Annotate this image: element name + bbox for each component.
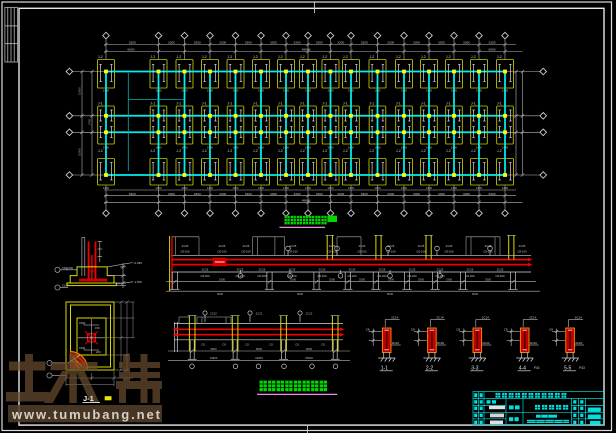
svg-text:1400: 1400 — [283, 146, 290, 150]
svg-text:2C25: 2C25 — [379, 267, 386, 271]
svg-text:3300: 3300 — [489, 41, 496, 45]
svg-text:6600: 6600 — [472, 292, 479, 296]
svg-text:6600: 6600 — [297, 292, 304, 296]
svg-text:3300: 3300 — [129, 41, 136, 45]
svg-text:C8: C8 — [549, 327, 553, 331]
svg-text:C8-200: C8-200 — [377, 274, 387, 278]
svg-text:1400: 1400 — [348, 146, 355, 150]
svg-text:2C14: 2C14 — [391, 316, 399, 320]
svg-text:3300: 3300 — [245, 41, 252, 45]
svg-text:J-1: J-1 — [369, 101, 374, 105]
svg-text:1400: 1400 — [374, 146, 381, 150]
svg-text:2C22: 2C22 — [306, 312, 313, 316]
svg-text:J-1: J-1 — [322, 101, 327, 105]
svg-text:C8: C8 — [456, 327, 460, 331]
svg-text:1400: 1400 — [327, 146, 334, 150]
svg-text:C8-100: C8-100 — [416, 249, 426, 253]
svg-text:J-2: J-2 — [421, 149, 426, 153]
svg-text:1400: 1400 — [207, 89, 214, 93]
svg-text:6600: 6600 — [217, 292, 224, 296]
svg-text:19800: 19800 — [305, 356, 313, 360]
svg-text:150: 150 — [95, 326, 100, 330]
svg-text:J-1: J-1 — [227, 101, 232, 105]
svg-text:1400: 1400 — [258, 186, 265, 190]
svg-text:1400: 1400 — [283, 186, 290, 190]
svg-text:2C25: 2C25 — [349, 267, 356, 271]
svg-text:J-1: J-1 — [300, 101, 305, 105]
svg-text:2C25: 2C25 — [237, 267, 244, 271]
svg-text:3C20: 3C20 — [530, 341, 538, 345]
svg-text:J-2: J-2 — [369, 149, 374, 153]
svg-text:J-2: J-2 — [497, 55, 502, 59]
svg-text:2C25: 2C25 — [485, 244, 492, 248]
svg-text:1400: 1400 — [327, 186, 334, 190]
svg-text:C8: C8 — [269, 342, 273, 346]
svg-text:2C25: 2C25 — [409, 267, 416, 271]
svg-text:C8-200: C8-200 — [435, 274, 445, 278]
svg-text:2C25: 2C25 — [202, 267, 209, 271]
svg-text:J-1: J-1 — [471, 101, 476, 105]
svg-text:J-1: J-1 — [278, 101, 283, 105]
svg-text:3300: 3300 — [361, 41, 368, 45]
svg-text:J-1: J-1 — [202, 101, 207, 105]
svg-text:1400: 1400 — [181, 146, 188, 150]
svg-text:3C20: 3C20 — [575, 341, 583, 345]
svg-text:J-2: J-2 — [300, 55, 305, 59]
svg-text:3300: 3300 — [219, 41, 226, 45]
svg-text:1400: 1400 — [401, 89, 408, 93]
svg-text:1400: 1400 — [426, 146, 433, 150]
svg-text:C8-100: C8-100 — [517, 249, 527, 253]
svg-text:C8-200: C8-200 — [257, 274, 267, 278]
svg-text:C8@: C8@ — [79, 321, 86, 325]
svg-text:1400: 1400 — [207, 146, 214, 150]
svg-text:3300: 3300 — [219, 192, 226, 196]
svg-text:3300: 3300 — [418, 278, 425, 282]
svg-text:J-1: J-1 — [150, 101, 155, 105]
svg-text:2C25: 2C25 — [319, 267, 326, 271]
svg-text:2C25: 2C25 — [182, 244, 189, 248]
svg-text:15000: 15000 — [78, 87, 82, 95]
svg-text:1400: 1400 — [232, 186, 239, 190]
svg-text:3300: 3300 — [446, 278, 453, 282]
svg-text:3300: 3300 — [361, 192, 368, 196]
svg-text:1400: 1400 — [426, 89, 433, 93]
svg-text:1400: 1400 — [451, 186, 458, 190]
svg-text:3300: 3300 — [413, 192, 420, 196]
svg-text:J-2: J-2 — [421, 55, 426, 59]
svg-text:2C14: 2C14 — [482, 316, 490, 320]
svg-text:3300: 3300 — [194, 41, 201, 45]
svg-text:J-2: J-2 — [176, 55, 181, 59]
svg-text:2C25: 2C25 — [219, 244, 226, 248]
svg-text:2700: 2700 — [88, 118, 92, 125]
svg-text:1400: 1400 — [103, 186, 110, 190]
svg-text:2C25: 2C25 — [446, 244, 453, 248]
svg-text:J-1: J-1 — [497, 101, 502, 105]
svg-text:3C20: 3C20 — [482, 341, 490, 345]
svg-text:-1.500: -1.500 — [134, 280, 143, 284]
svg-text:3300: 3300 — [463, 192, 470, 196]
svg-text:3300: 3300 — [438, 41, 445, 45]
svg-text:2C22: 2C22 — [210, 312, 217, 316]
svg-text:1400: 1400 — [476, 146, 483, 150]
svg-text:C8-100: C8-100 — [288, 249, 298, 253]
svg-text:1400: 1400 — [283, 89, 290, 93]
svg-text:J-2: J-2 — [253, 55, 258, 59]
svg-text:3300: 3300 — [438, 192, 445, 196]
svg-text:J-1: J-1 — [421, 101, 426, 105]
svg-text:J-2: J-2 — [343, 149, 348, 153]
svg-text:1400: 1400 — [305, 89, 312, 93]
svg-text:1400: 1400 — [426, 186, 433, 190]
svg-text:2C25: 2C25 — [467, 267, 474, 271]
svg-text:C8: C8 — [366, 327, 370, 331]
svg-text:1400: 1400 — [502, 186, 509, 190]
svg-text:C8-100: C8-100 — [444, 249, 454, 253]
svg-text:C8-200: C8-200 — [317, 274, 327, 278]
svg-text:1400: 1400 — [348, 186, 355, 190]
svg-text:J-2: J-2 — [446, 149, 451, 153]
svg-text:1400: 1400 — [103, 146, 110, 150]
svg-text:C8: C8 — [222, 342, 226, 346]
svg-text:1400: 1400 — [232, 89, 239, 93]
svg-text:2C25: 2C25 — [519, 244, 526, 248]
svg-text:200: 200 — [96, 350, 101, 354]
svg-text:6600: 6600 — [387, 292, 394, 296]
svg-text:1400: 1400 — [451, 146, 458, 150]
svg-text:1400: 1400 — [502, 146, 509, 150]
svg-text:J-2: J-2 — [497, 149, 502, 153]
svg-text:6600: 6600 — [256, 347, 263, 351]
svg-text:2C25: 2C25 — [259, 267, 266, 271]
svg-text:J-2: J-2 — [369, 55, 374, 59]
svg-text:3300: 3300 — [359, 278, 366, 282]
svg-text:J-2: J-2 — [322, 149, 327, 153]
svg-text:J-1: J-1 — [446, 101, 451, 105]
svg-text:1400: 1400 — [348, 89, 355, 93]
svg-text:1400: 1400 — [476, 186, 483, 190]
svg-text:3300: 3300 — [463, 41, 470, 45]
svg-text:C8-200: C8-200 — [495, 274, 505, 278]
svg-text:3300: 3300 — [489, 192, 496, 196]
svg-text:6600: 6600 — [210, 347, 217, 351]
svg-text:1400: 1400 — [305, 186, 312, 190]
svg-text:P43: P43 — [534, 366, 540, 370]
svg-text:J-2: J-2 — [278, 149, 283, 153]
svg-text:C8: C8 — [201, 342, 205, 346]
svg-text:3300: 3300 — [245, 192, 252, 196]
svg-text:3C20: 3C20 — [437, 341, 445, 345]
svg-text:3300: 3300 — [290, 278, 297, 282]
svg-text:3300: 3300 — [337, 41, 344, 45]
svg-text:J-2: J-2 — [343, 55, 348, 59]
svg-text:2C25: 2C25 — [418, 244, 425, 248]
svg-text:J-2: J-2 — [98, 149, 103, 153]
svg-text:J-1: J-1 — [396, 101, 401, 105]
svg-text:J-2: J-2 — [98, 55, 103, 59]
svg-text:1400: 1400 — [155, 89, 162, 93]
svg-text:1400: 1400 — [305, 146, 312, 150]
svg-text:2C25: 2C25 — [388, 244, 395, 248]
svg-text:J-2: J-2 — [253, 149, 258, 153]
svg-text:1400: 1400 — [103, 89, 110, 93]
svg-text:J-2: J-2 — [227, 55, 232, 59]
svg-text:1400: 1400 — [155, 186, 162, 190]
svg-text:J-2: J-2 — [150, 55, 155, 59]
svg-text:1400: 1400 — [502, 89, 509, 93]
svg-text:1400: 1400 — [258, 146, 265, 150]
svg-text:1400: 1400 — [258, 89, 265, 93]
svg-text:2C25: 2C25 — [290, 244, 297, 248]
svg-text:C8-200: C8-200 — [235, 274, 245, 278]
svg-text:3C20: 3C20 — [392, 341, 400, 345]
svg-text:19800: 19800 — [210, 356, 218, 360]
svg-text:C8-200: C8-200 — [347, 274, 357, 278]
svg-text:J-2: J-2 — [300, 149, 305, 153]
svg-text:1400: 1400 — [401, 186, 408, 190]
svg-text:C8-100: C8-100 — [327, 249, 337, 253]
svg-text:3300: 3300 — [337, 192, 344, 196]
svg-text:1400: 1400 — [476, 89, 483, 93]
svg-text:J-2: J-2 — [202, 149, 207, 153]
svg-text:3300: 3300 — [129, 192, 136, 196]
svg-text:1400: 1400 — [232, 146, 239, 150]
svg-text:J-2: J-2 — [150, 149, 155, 153]
svg-text:C8-200: C8-200 — [287, 274, 297, 278]
svg-text:C8-200: C8-200 — [200, 274, 210, 278]
svg-text:C8-100: C8-100 — [483, 249, 493, 253]
svg-text:3300: 3300 — [316, 41, 323, 45]
svg-text:J-2: J-2 — [176, 149, 181, 153]
svg-text:2C14: 2C14 — [529, 316, 537, 320]
svg-text:15000: 15000 — [78, 148, 82, 156]
svg-text:J-1: J-1 — [98, 101, 103, 105]
svg-text:C8: C8 — [504, 327, 508, 331]
svg-text:1400: 1400 — [374, 89, 381, 93]
svg-text:3300: 3300 — [388, 278, 395, 282]
svg-text:1400: 1400 — [401, 146, 408, 150]
svg-text:J-1: J-1 — [176, 101, 181, 105]
svg-text:3300: 3300 — [485, 278, 492, 282]
svg-text:49800: 49800 — [302, 199, 311, 203]
svg-text:3300: 3300 — [294, 192, 301, 196]
svg-text:J-1: J-1 — [343, 101, 348, 105]
svg-text:6600: 6600 — [306, 347, 313, 351]
svg-text:C8-100: C8-100 — [357, 249, 367, 253]
svg-text:2C25: 2C25 — [497, 267, 504, 271]
svg-text:C8-100: C8-100 — [386, 249, 396, 253]
svg-text:6600: 6600 — [489, 48, 496, 52]
svg-text:2C25: 2C25 — [243, 244, 250, 248]
svg-text:3300: 3300 — [413, 41, 420, 45]
svg-text:J-2: J-2 — [227, 149, 232, 153]
svg-text:2C25: 2C25 — [359, 244, 366, 248]
svg-text:3300: 3300 — [168, 192, 175, 196]
svg-text:J-2: J-2 — [202, 55, 207, 59]
svg-text:J-2: J-2 — [471, 149, 476, 153]
svg-text:2C25: 2C25 — [329, 244, 336, 248]
svg-text:J-2: J-2 — [471, 55, 476, 59]
svg-text:2C25: 2C25 — [289, 267, 296, 271]
svg-text:C8-100: C8-100 — [217, 249, 227, 253]
svg-text:1400: 1400 — [451, 89, 458, 93]
svg-text:C8: C8 — [245, 342, 249, 346]
svg-text:J-1: J-1 — [253, 101, 258, 105]
svg-text:49800: 49800 — [302, 48, 311, 52]
svg-text:C8-100: C8-100 — [180, 249, 190, 253]
svg-text:2C14: 2C14 — [436, 316, 444, 320]
svg-text:J-1: J-1 — [83, 394, 94, 403]
svg-text:3300: 3300 — [387, 192, 394, 196]
svg-text:J-2: J-2 — [446, 55, 451, 59]
svg-text:J-2: J-2 — [396, 149, 401, 153]
svg-text:C8: C8 — [295, 342, 299, 346]
svg-text:2C22: 2C22 — [256, 312, 263, 316]
svg-text:19800: 19800 — [255, 356, 263, 360]
svg-text:6600: 6600 — [128, 48, 135, 52]
svg-text:-0.050: -0.050 — [134, 261, 143, 265]
svg-text:1400: 1400 — [181, 89, 188, 93]
svg-text:C100: C100 — [62, 284, 69, 288]
svg-text:3300: 3300 — [316, 192, 323, 196]
svg-text:1400: 1400 — [181, 186, 188, 190]
svg-text:J-2: J-2 — [322, 55, 327, 59]
svg-text:3300: 3300 — [168, 41, 175, 45]
svg-text:C8: C8 — [321, 342, 325, 346]
svg-text:1400: 1400 — [327, 89, 334, 93]
svg-text:P43: P43 — [579, 366, 585, 370]
svg-text:1400: 1400 — [207, 186, 214, 190]
svg-text:J-2: J-2 — [278, 55, 283, 59]
svg-text:C8: C8 — [411, 327, 415, 331]
svg-text:3300: 3300 — [387, 41, 394, 45]
svg-text:3300: 3300 — [270, 41, 277, 45]
svg-text:2C25: 2C25 — [437, 267, 444, 271]
svg-text:J-2: J-2 — [396, 55, 401, 59]
svg-text:C8@: C8@ — [79, 346, 86, 350]
svg-text:C8@200: C8@200 — [62, 266, 74, 270]
svg-text:www.tumubang.net: www.tumubang.net — [11, 407, 162, 422]
svg-text:3300: 3300 — [294, 41, 301, 45]
svg-text:3300: 3300 — [270, 192, 277, 196]
svg-text:C8-200: C8-200 — [407, 274, 417, 278]
svg-text:3300: 3300 — [219, 278, 226, 282]
svg-text:1400: 1400 — [155, 146, 162, 150]
svg-text:C8-100: C8-100 — [241, 249, 251, 253]
svg-text:1400: 1400 — [374, 186, 381, 190]
svg-text:3300: 3300 — [194, 192, 201, 196]
svg-text:2C14: 2C14 — [575, 316, 583, 320]
svg-text:C8-200: C8-200 — [465, 274, 475, 278]
svg-text:3300: 3300 — [329, 278, 336, 282]
